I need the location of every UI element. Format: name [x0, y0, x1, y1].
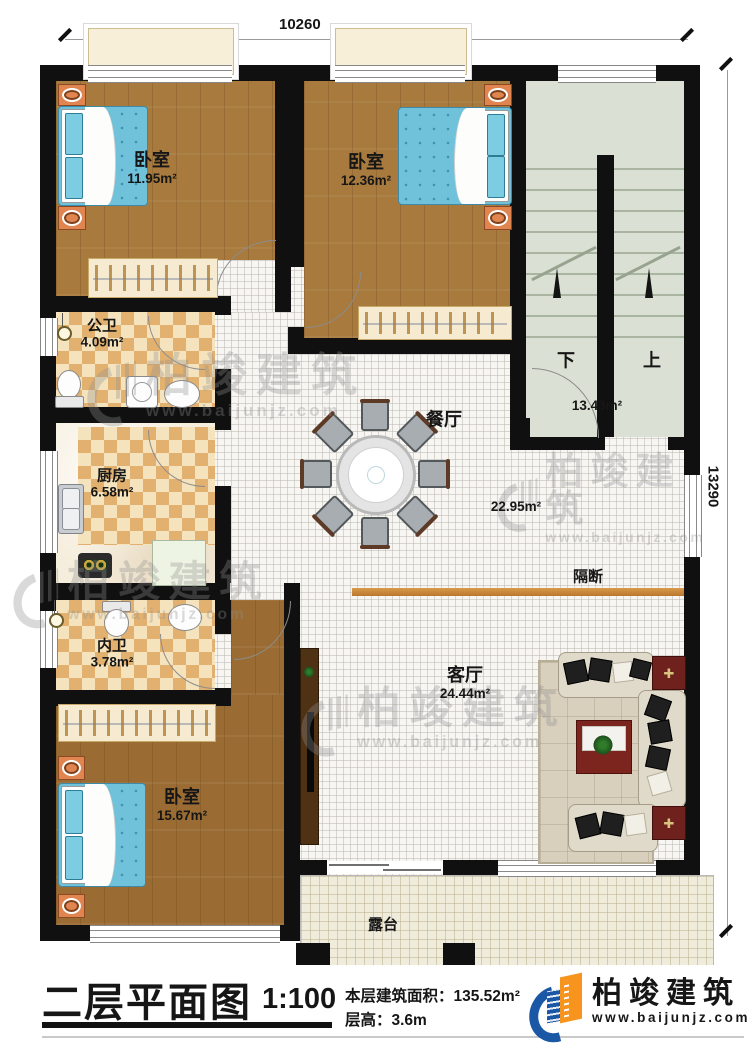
wall-segment — [684, 557, 700, 875]
terrace-column — [296, 943, 330, 967]
room-label-bedroom-top-mid: 卧室12.36m² — [341, 152, 391, 188]
nightstand — [484, 84, 512, 106]
scale-label: 1:100 — [262, 983, 336, 1016]
terrace-label: 露台 — [368, 916, 398, 933]
sliding-door — [327, 861, 443, 874]
wall-segment — [684, 65, 700, 475]
side-table: ✚ — [652, 806, 686, 840]
watermark-logo-icon — [302, 690, 350, 747]
bed-sheet — [85, 107, 116, 205]
floor-height-label: 层高：3.6m — [345, 1009, 427, 1032]
right-dimension-label: 13290 — [704, 463, 721, 511]
room-label-public-bath: 公卫4.09m² — [81, 318, 124, 351]
wall-segment — [668, 437, 684, 450]
sofa — [638, 690, 686, 808]
stair-direction-arrow — [553, 268, 561, 298]
window — [88, 65, 232, 83]
watermark: 柏竣建筑www.baijunjz.com — [88, 352, 366, 421]
chair-icon — [361, 517, 389, 547]
wall-segment — [40, 296, 216, 312]
nightstand — [58, 206, 86, 230]
floor-area-label: 本层建筑面积：135.52m² — [345, 985, 520, 1008]
bed-sheet — [454, 108, 485, 204]
right-dimension-line — [727, 70, 728, 936]
wall-segment — [40, 668, 56, 941]
title-underline-thick — [42, 1022, 332, 1028]
wall-segment — [510, 81, 526, 450]
nightstand — [58, 84, 86, 106]
plant-icon — [303, 666, 315, 678]
chair-icon — [418, 460, 448, 488]
wall-segment — [215, 296, 231, 315]
page-title: 二层平面图 — [42, 970, 252, 1028]
wall-segment — [232, 65, 335, 81]
room-label-ensuite-bath: 内卫3.78m² — [91, 638, 134, 671]
wall-segment — [40, 65, 56, 318]
top-dimension-label: 10260 — [276, 16, 324, 33]
room-label-bedroom-top-left: 卧室11.95m² — [127, 150, 177, 186]
brand-logo-icon — [530, 973, 586, 1035]
bed-pillows — [61, 786, 87, 884]
kitchen-sink-icon — [58, 484, 84, 534]
dimension-tick — [719, 57, 733, 71]
nightstand — [58, 756, 85, 780]
wall-segment — [40, 356, 56, 451]
title-underline-thin — [42, 1036, 744, 1038]
dimension-tick — [719, 924, 733, 938]
room-label-bedroom-bottom: 卧室15.67m² — [157, 787, 207, 823]
logo-building-orange — [560, 973, 582, 1024]
brand-name: 柏竣建筑 — [592, 977, 750, 1010]
wall-segment — [284, 583, 300, 941]
floor-plan-canvas: 10260 13290 — [0, 0, 750, 1046]
watermark: 柏竣建筑www.baijunjz.com — [302, 686, 566, 752]
watermark-logo-icon — [88, 357, 138, 417]
bed-pillows — [61, 109, 87, 203]
plant-icon — [592, 734, 614, 756]
wall-segment — [510, 437, 605, 450]
bed — [398, 107, 512, 205]
chair-icon — [302, 460, 332, 488]
brand-text: 柏竣建筑 www.baijunjz.com — [592, 977, 750, 1025]
lamp-cord — [62, 313, 63, 327]
wall-segment — [288, 327, 304, 338]
stair-spine-wall — [597, 155, 614, 437]
wall-segment — [40, 925, 90, 941]
side-table: ✚ — [652, 656, 686, 690]
room-label-living: 客厅24.44m² — [440, 665, 490, 701]
toilet-tank — [55, 396, 84, 408]
wall-segment — [443, 860, 498, 875]
brand-url: www.baijunjz.com — [592, 1010, 750, 1025]
sofa — [558, 652, 654, 698]
wardrobe — [358, 306, 512, 340]
nightstand — [484, 206, 512, 230]
stair-down-label: 下 — [557, 351, 575, 372]
room-label-kitchen: 厨房6.58m² — [91, 468, 134, 501]
watermark-logo-icon — [14, 564, 60, 619]
wall-segment — [288, 81, 304, 267]
dining-area-value: 22.95m² — [491, 499, 541, 515]
wall-segment — [656, 860, 700, 875]
stair-hall-area-value: 13.43m² — [572, 398, 622, 414]
stair-up-label: 上 — [643, 351, 661, 372]
watermark: 柏竣建筑www.baijunjz.com — [14, 560, 270, 623]
title-block: 二层平面图 1:100 本层建筑面积：135.52m² 层高：3.6m 柏竣建筑… — [0, 965, 750, 1046]
nightstand — [58, 894, 85, 918]
room-label-dining: 餐厅 — [426, 410, 462, 431]
partition-strip — [352, 588, 684, 596]
window — [40, 318, 58, 356]
terrace-column — [443, 943, 475, 967]
wall-segment — [465, 65, 558, 81]
bed-pillows — [483, 110, 509, 202]
partition-label: 隔断 — [573, 568, 603, 585]
window — [40, 451, 58, 553]
window — [558, 65, 656, 83]
bed-sheet — [85, 784, 116, 886]
stair-direction-arrow — [645, 268, 653, 298]
wardrobe — [58, 704, 216, 742]
wardrobe — [88, 258, 218, 298]
toilet-icon — [57, 370, 81, 399]
terrace-floor — [300, 875, 714, 968]
window — [335, 65, 465, 83]
bed — [58, 783, 146, 887]
wall-segment — [300, 860, 327, 875]
dining-table — [336, 435, 416, 515]
ceiling-lamp-icon — [57, 326, 72, 341]
window — [90, 925, 280, 943]
sofa — [568, 804, 658, 852]
